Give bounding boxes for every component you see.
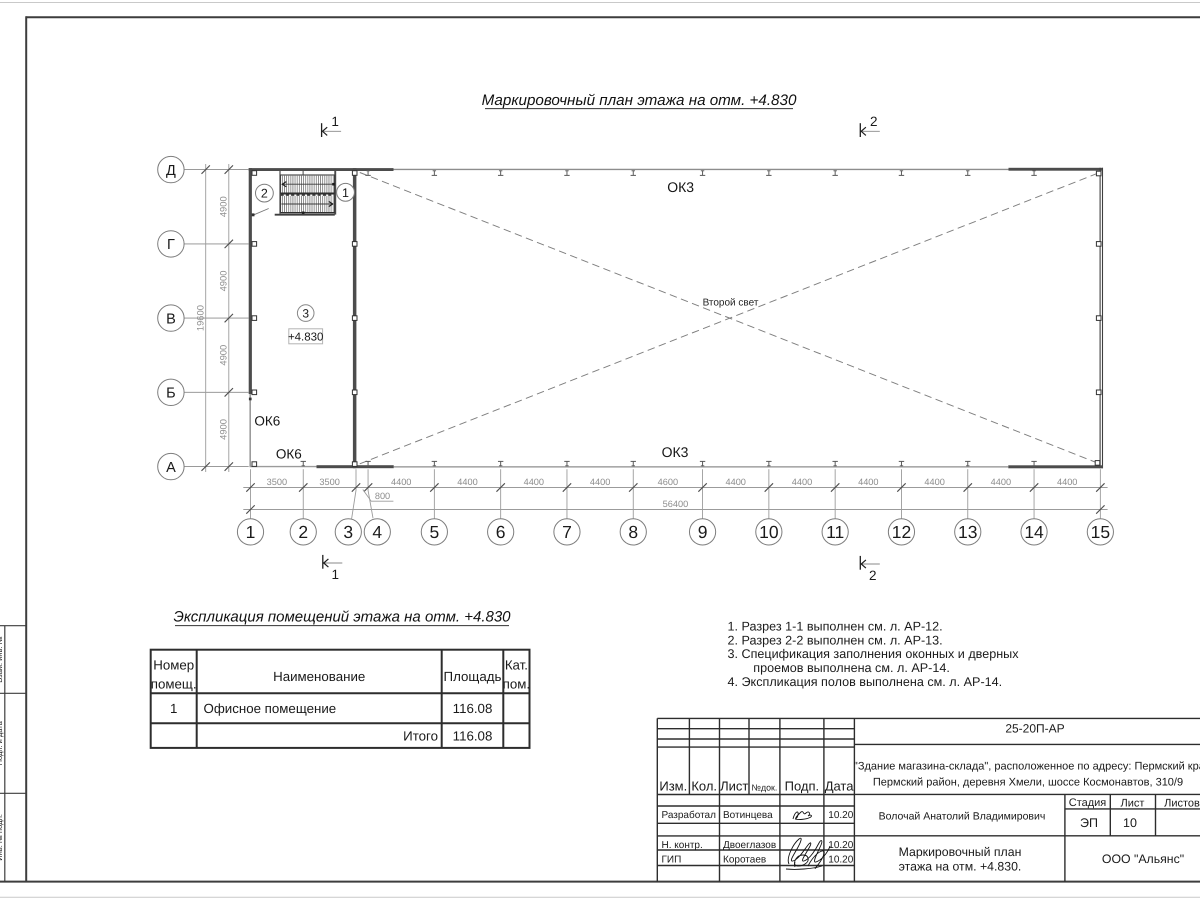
- svg-text:ОК6: ОК6: [254, 413, 280, 428]
- svg-text:Изм.: Изм.: [659, 779, 687, 794]
- svg-text:+4.830: +4.830: [288, 331, 324, 343]
- svg-text:пом.: пом.: [503, 677, 530, 692]
- svg-text:12: 12: [892, 522, 911, 542]
- svg-text:4400: 4400: [590, 477, 610, 487]
- svg-text:этажа на отм. +4.830.: этажа на отм. +4.830.: [899, 859, 1022, 873]
- svg-text:4400: 4400: [991, 477, 1011, 487]
- svg-text:Г: Г: [167, 237, 175, 253]
- svg-text:4400: 4400: [391, 477, 411, 487]
- svg-text:4400: 4400: [1057, 477, 1077, 487]
- svg-text:11: 11: [826, 522, 844, 542]
- svg-text:Листов: Листов: [1164, 797, 1200, 809]
- svg-text:Б: Б: [166, 386, 176, 402]
- svg-text:Наименование: Наименование: [273, 669, 365, 684]
- svg-text:4. Экспликация полов выполнена: 4. Экспликация полов выполнена см. л. АР…: [728, 675, 1003, 689]
- svg-text:19600: 19600: [194, 305, 205, 331]
- svg-text:10.20: 10.20: [828, 840, 853, 851]
- svg-text:Коротаев: Коротаев: [723, 854, 766, 865]
- svg-text:4400: 4400: [792, 477, 812, 487]
- svg-text:1: 1: [331, 114, 339, 129]
- svg-text:Номер: Номер: [153, 657, 194, 672]
- svg-text:Вотинцева: Вотинцева: [723, 810, 773, 821]
- svg-text:Двоеглазов: Двоеглазов: [723, 840, 776, 851]
- svg-text:5: 5: [429, 522, 439, 542]
- svg-text:Подп. и дата: Подп. и дата: [0, 720, 4, 765]
- svg-text:Итого: Итого: [403, 729, 438, 744]
- svg-text:Экспликация помещений этажа на: Экспликация помещений этажа на отм. +4.8…: [173, 609, 511, 626]
- svg-text:6: 6: [496, 522, 506, 542]
- svg-text:ООО "Альянс": ООО "Альянс": [1102, 852, 1184, 866]
- svg-text:7: 7: [562, 522, 572, 542]
- svg-text:Н. контр.: Н. контр.: [662, 840, 703, 851]
- svg-text:ЭП: ЭП: [1080, 816, 1098, 830]
- svg-text:В: В: [166, 311, 176, 327]
- svg-text:ОК3: ОК3: [667, 179, 694, 195]
- svg-text:Дата: Дата: [825, 779, 855, 794]
- svg-text:1. Разрез 1-1 выполнен см. л.: 1. Разрез 1-1 выполнен см. л. АР-12.: [728, 620, 943, 634]
- svg-text:4900: 4900: [218, 419, 229, 440]
- svg-text:4900: 4900: [218, 196, 229, 217]
- svg-text:Подп.: Подп.: [785, 779, 820, 794]
- svg-text:4900: 4900: [218, 271, 229, 292]
- svg-text:15: 15: [1091, 522, 1110, 542]
- svg-text:4400: 4400: [858, 477, 878, 487]
- svg-text:8: 8: [628, 522, 638, 542]
- svg-text:1: 1: [332, 567, 340, 582]
- svg-text:Кол.: Кол.: [691, 779, 717, 794]
- svg-text:Взам. инв. №: Взам. инв. №: [0, 636, 4, 682]
- svg-text:Д: Д: [166, 163, 176, 179]
- svg-text:4: 4: [372, 522, 382, 542]
- svg-text:9: 9: [698, 522, 708, 542]
- svg-text:4400: 4400: [725, 477, 745, 487]
- svg-text:Лист: Лист: [720, 779, 748, 794]
- svg-text:56400: 56400: [663, 499, 689, 509]
- svg-text:Маркировочный план этажа на от: Маркировочный план этажа на отм. +4.830: [482, 92, 797, 109]
- svg-text:1: 1: [246, 522, 256, 542]
- svg-text:4400: 4400: [524, 477, 544, 487]
- svg-text:Лист: Лист: [1121, 797, 1145, 809]
- svg-text:3500: 3500: [267, 477, 287, 487]
- svg-text:Маркировочный план: Маркировочный план: [899, 845, 1022, 859]
- svg-text:ОК6: ОК6: [276, 447, 302, 462]
- svg-text:10: 10: [1123, 816, 1137, 830]
- svg-text:№док.: №док.: [752, 783, 778, 793]
- svg-text:25-20П-АР: 25-20П-АР: [1005, 722, 1064, 736]
- svg-text:Пермский район, деревня Хмели,: Пермский район, деревня Хмели, шоссе Кос…: [873, 776, 1183, 788]
- svg-text:2: 2: [870, 114, 878, 129]
- svg-text:2: 2: [869, 568, 877, 583]
- svg-text:3: 3: [343, 522, 353, 542]
- svg-text:10.20: 10.20: [828, 854, 853, 865]
- svg-text:4900: 4900: [218, 345, 229, 366]
- svg-text:ОК3: ОК3: [662, 444, 689, 460]
- svg-text:Волочай Анатолий Владимирович: Волочай Анатолий Владимирович: [879, 810, 1046, 822]
- svg-text:Разработал: Разработал: [662, 810, 717, 821]
- svg-text:"Здание магазина-склада", расп: "Здание магазина-склада", расположенное …: [854, 760, 1200, 772]
- svg-text:116.08: 116.08: [453, 701, 493, 716]
- svg-text:Офисное помещение: Офисное помещение: [204, 701, 337, 716]
- svg-text:2: 2: [298, 522, 308, 542]
- svg-text:3. Спецификация заполнения око: 3. Спецификация заполнения оконных и две…: [728, 647, 1020, 661]
- svg-text:Стадия: Стадия: [1069, 797, 1107, 809]
- svg-text:Второй свет: Второй свет: [703, 297, 759, 308]
- svg-text:116.08: 116.08: [453, 729, 493, 744]
- svg-text:Площадь: Площадь: [444, 669, 502, 684]
- svg-text:3: 3: [302, 306, 309, 320]
- svg-text:1: 1: [342, 186, 349, 200]
- svg-text:4400: 4400: [924, 477, 944, 487]
- svg-text:10.20: 10.20: [828, 810, 853, 821]
- svg-text:800: 800: [375, 491, 390, 501]
- svg-text:3500: 3500: [319, 477, 339, 487]
- svg-text:помещ.: помещ.: [151, 677, 197, 692]
- svg-text:2. Разрез 2-2 выполнен см. л.: 2. Разрез 2-2 выполнен см. л. АР-13.: [728, 633, 943, 647]
- svg-text:Кат.: Кат.: [505, 657, 528, 672]
- svg-text:1: 1: [170, 701, 177, 716]
- svg-text:13: 13: [958, 522, 977, 542]
- svg-text:Инв. № подл.: Инв. № подл.: [0, 814, 4, 861]
- svg-text:проемов выполнена см. л. АР-14: проемов выполнена см. л. АР-14.: [753, 661, 950, 675]
- svg-text:А: А: [166, 460, 176, 476]
- svg-text:14: 14: [1024, 522, 1044, 542]
- svg-text:4600: 4600: [658, 477, 678, 487]
- svg-text:ГИП: ГИП: [662, 854, 682, 865]
- svg-text:10: 10: [759, 522, 779, 542]
- svg-text:2: 2: [261, 187, 268, 201]
- svg-text:4400: 4400: [457, 477, 477, 487]
